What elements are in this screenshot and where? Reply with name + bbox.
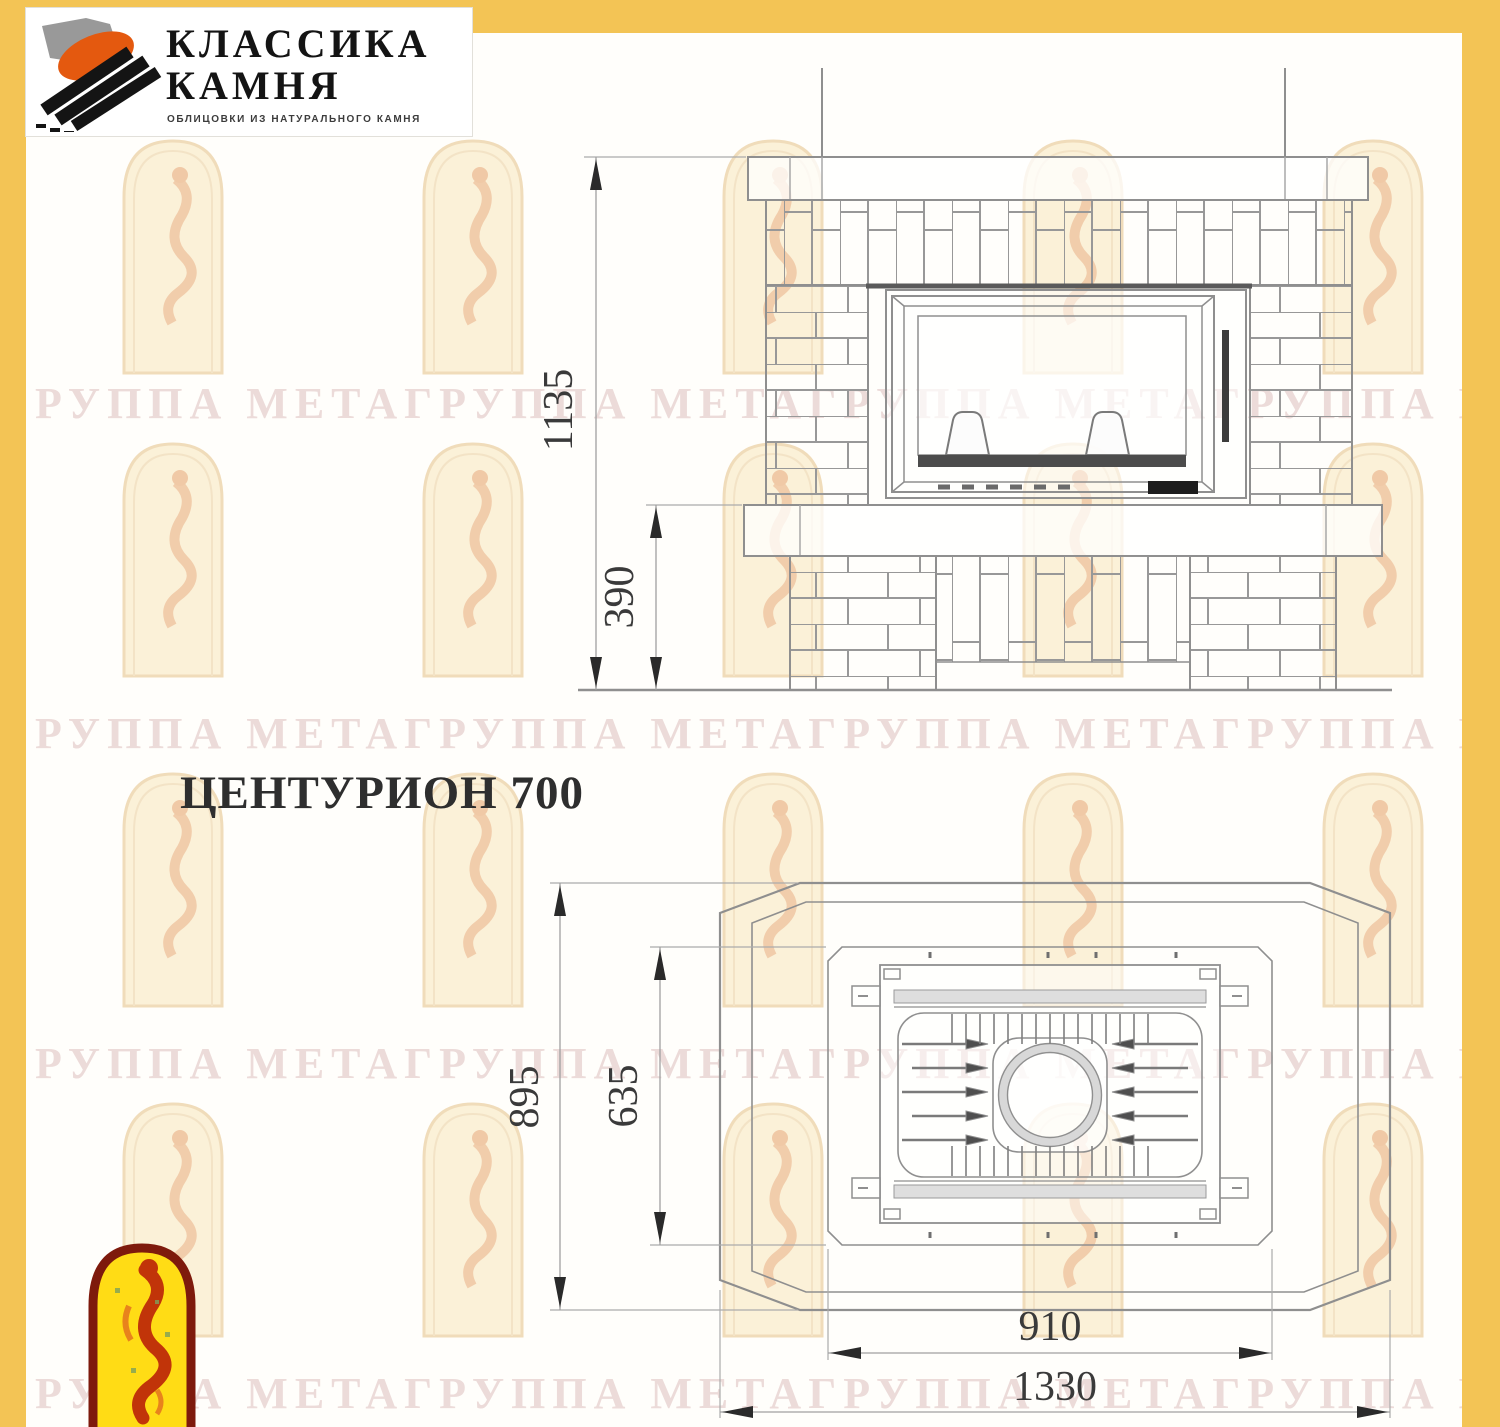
page: ГРУППА МЕТАГРУППА МЕТАГРУППА МЕТАГРУППА … <box>0 0 1500 1427</box>
stone-logo-icon <box>30 12 164 132</box>
dimension-insert-depth: 635 <box>601 947 826 1245</box>
frame-border-right <box>1462 0 1500 1427</box>
upper-frieze-band <box>766 200 1352 285</box>
firedog-left <box>946 412 989 455</box>
brand-name-line1: КЛАССИКА <box>166 24 430 64</box>
base-frieze-band <box>936 556 1190 662</box>
grate-strip <box>918 455 1186 467</box>
dim-label-1330: 1330 <box>1013 1364 1097 1410</box>
brand-name-line2: КАМНЯ <box>166 66 342 106</box>
dimension-base-height: 390 <box>597 505 742 690</box>
firebox-insert-front <box>886 290 1246 498</box>
dim-label-1135: 1135 <box>536 369 582 451</box>
frame-border-left <box>0 0 26 1427</box>
dim-label-390: 390 <box>597 566 643 629</box>
right-pedestal <box>1190 556 1336 690</box>
front-elevation-view <box>578 68 1392 690</box>
left-pedestal <box>790 556 936 690</box>
model-title: ЦЕНТУРИОН 700 <box>180 766 584 820</box>
firedog-right <box>1086 412 1129 455</box>
dimension-insert-width: 910 <box>828 1249 1272 1360</box>
brand-logo-box: КЛАССИКА КАМНЯ ОБЛИЦОВКИ ИЗ НАТУРАЛЬНОГО… <box>25 7 473 137</box>
chimney-lines <box>822 68 1285 157</box>
door-handle <box>1222 330 1229 442</box>
arch-emblem-icon <box>85 1240 199 1427</box>
hearth-shelf <box>744 505 1382 556</box>
firebox-insert-plan <box>852 952 1248 1238</box>
mantel-shelf <box>748 157 1368 200</box>
right-column <box>1250 285 1352 505</box>
left-column <box>766 285 868 505</box>
dim-label-895: 895 <box>502 1066 548 1129</box>
dim-label-910: 910 <box>1019 1304 1082 1350</box>
fireplace-technical-drawing: 1135 390 <box>0 0 1500 1427</box>
badge-plate <box>1148 481 1198 494</box>
brand-tagline: ОБЛИЦОВКИ ИЗ НАТУРАЛЬНОГО КАМНЯ <box>167 114 421 125</box>
dim-label-635: 635 <box>601 1065 647 1128</box>
